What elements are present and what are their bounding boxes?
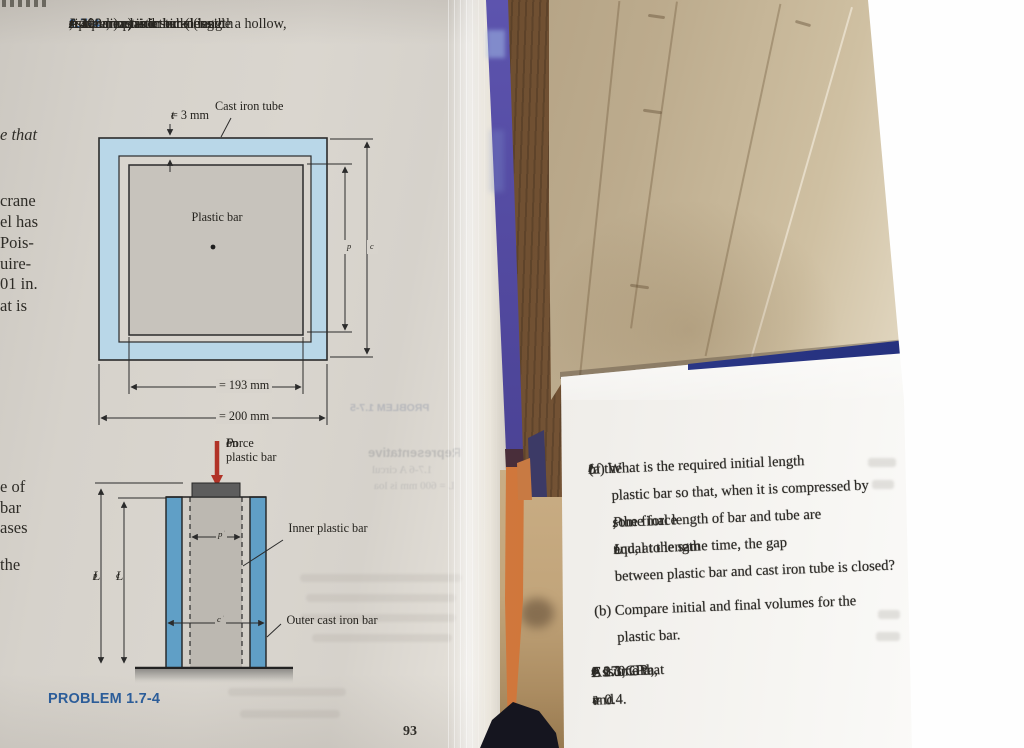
margin-fragment: bar bbox=[0, 498, 21, 518]
force-label-line2: plastic bar bbox=[226, 451, 276, 465]
force-arrow-head bbox=[211, 475, 223, 487]
margin-fragment: e that bbox=[0, 125, 37, 145]
ghost-text-bar bbox=[240, 710, 340, 718]
plank-joint bbox=[795, 20, 811, 27]
figure1-cross-section-diagram bbox=[85, 98, 405, 438]
ghost-text-bar bbox=[868, 458, 896, 467]
ground-shading bbox=[135, 669, 293, 684]
outer-bar-leader bbox=[267, 624, 281, 637]
plastic-bar-square bbox=[129, 165, 303, 335]
outer-cast-iron-bar-label: Outer cast iron bar bbox=[280, 614, 384, 628]
plank-joint bbox=[648, 14, 665, 19]
cast-iron-tube-label: Cast iron tube bbox=[215, 100, 283, 114]
tube-interior bbox=[182, 497, 250, 668]
ghost-text-bar bbox=[872, 480, 894, 489]
cast-iron-wall-left bbox=[166, 497, 182, 668]
left-textbook-page: e that crane el has Pois- uire- 01 in. a… bbox=[0, 0, 506, 748]
cast-iron-tube-leader bbox=[221, 118, 231, 137]
cover-reflection bbox=[487, 30, 505, 58]
ghost-text-bar bbox=[300, 574, 462, 582]
ghost-text-bar bbox=[312, 634, 452, 642]
ghost-text-bar bbox=[306, 594, 456, 602]
cast-iron-tube-inner-wall bbox=[119, 156, 311, 342]
figure2-elevation-diagram bbox=[85, 435, 405, 697]
cast-iron-tube-outer bbox=[99, 138, 327, 360]
load-cap bbox=[192, 483, 240, 497]
ghost-text-bar bbox=[876, 632, 900, 641]
page-number: 93 bbox=[403, 724, 417, 740]
margin-fragment: e of bbox=[0, 477, 25, 497]
plastic-bar-body bbox=[190, 497, 242, 668]
margin-fragment: crane bbox=[0, 191, 36, 211]
ghost-text: PROBLEM 1.7-5 bbox=[350, 402, 429, 414]
center-dot bbox=[211, 245, 216, 250]
margin-fragment: uire- bbox=[0, 254, 31, 274]
margin-fragment: the bbox=[0, 555, 20, 575]
margin-fragment: at is bbox=[0, 296, 27, 316]
inner-bar-leader bbox=[243, 540, 283, 566]
ghost-text-bar bbox=[878, 610, 900, 619]
cast-iron-wall-right bbox=[250, 497, 266, 668]
cover-reflection bbox=[490, 130, 504, 192]
ghost-text: 1.7-6 A circul bbox=[372, 464, 432, 476]
margin-fragment: Pois- bbox=[0, 233, 34, 253]
margin-fragment: ases bbox=[0, 518, 28, 538]
ghost-text: L = 600 mm is loa bbox=[374, 480, 455, 492]
margin-fragment: 01 in. bbox=[0, 274, 38, 294]
inner-plastic-bar-label: Inner plastic bar bbox=[280, 522, 376, 536]
plastic-bar-label: Plastic bar bbox=[176, 211, 258, 225]
table-shadow bbox=[520, 598, 554, 628]
cut-text-marks bbox=[2, 0, 46, 7]
margin-fragment: el has bbox=[0, 212, 38, 232]
ghost-text-bar bbox=[228, 688, 346, 696]
right-page-text: (a) What is the required initial length … bbox=[583, 444, 934, 747]
photo-of-textbook-scene: e that crane el has Pois- uire- 01 in. a… bbox=[0, 0, 1024, 748]
ghost-text-bar bbox=[300, 614, 456, 622]
plank-joint bbox=[643, 109, 662, 115]
figure-caption: PROBLEM 1.7-4 bbox=[48, 691, 160, 707]
